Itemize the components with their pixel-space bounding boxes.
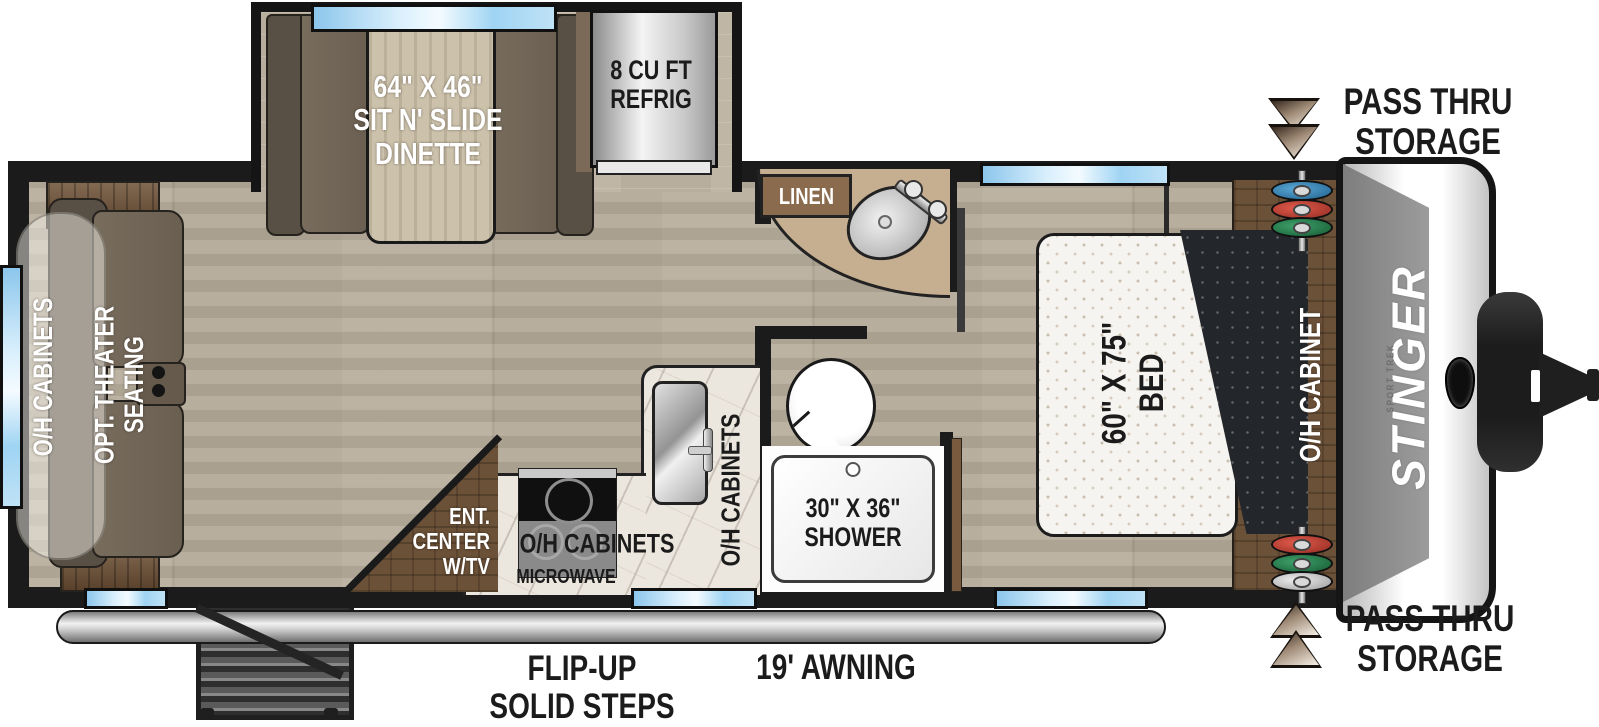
dinette-label: 64" X 46" SIT N' SLIDE DINETTE <box>353 70 502 170</box>
storage-disc-silver <box>1271 571 1333 592</box>
oh-cabinets-rear-label: O/H CABINETS <box>29 298 59 457</box>
hitch-coupler-knob <box>1587 369 1599 401</box>
kitchen-faucet-icon <box>688 446 712 455</box>
shower-drain-icon <box>846 462 861 477</box>
window-rear-wall <box>0 265 23 509</box>
kitchen-oh-cabinets-label: O/H CABINETS <box>520 529 675 558</box>
window-dinette-slide <box>311 4 557 32</box>
burner-icon <box>545 478 593 524</box>
hitch-coupler <box>1539 352 1593 418</box>
oh-cabinet-bedroom-label: O/H CABINET <box>1296 308 1328 463</box>
refrigerator-label: 8 CU FT REFRIG <box>610 56 692 114</box>
propane-cover-notch <box>1531 370 1540 402</box>
window-bottom-bedroom <box>994 588 1148 609</box>
bathroom-door <box>957 208 965 332</box>
window-bottom-kitchen <box>631 588 757 609</box>
cupholder-icon <box>152 366 165 379</box>
pass-thru-top-label: PASS THRU STORAGE <box>1344 82 1513 162</box>
pass-thru-arrow-top-2 <box>1268 124 1320 160</box>
faucet-handle-icon <box>904 180 923 199</box>
storage-disc-green <box>1271 217 1333 238</box>
microwave-label: MICROWAVE <box>516 567 615 589</box>
step-foot-right <box>324 708 338 718</box>
brand-sub-label: SPORT TREK <box>1386 343 1397 412</box>
linen-label: LINEN <box>778 183 833 210</box>
ent-center-label: ENT. CENTER W/TV <box>398 504 490 579</box>
linen-closet: LINEN <box>760 174 852 218</box>
kitchen-sink <box>652 381 708 505</box>
awning-label: 19' AWNING <box>756 649 916 687</box>
shower-label: 30" X 36" SHOWER <box>804 494 901 552</box>
refrigerator-counter-strip <box>596 160 712 175</box>
steps-label: FLIP-UP SOLID STEPS <box>489 650 674 726</box>
storage-disc-red2 <box>1271 534 1333 555</box>
window-top-bedroom <box>980 163 1170 186</box>
pass-thru-bottom-label: PASS THRU STORAGE <box>1346 599 1515 679</box>
toilet <box>786 358 876 454</box>
kitchen-oh-cabinets-vertical-label: O/H CABINETS <box>717 414 746 567</box>
pass-thru-arrow-bottom-2 <box>1270 630 1322 668</box>
storage-disc-blue <box>1271 180 1333 201</box>
faucet-handle-icon <box>928 200 947 219</box>
wall-bath-mid <box>755 326 867 339</box>
wall-top-left <box>8 161 253 182</box>
bedroom-door <box>951 438 962 592</box>
sink-drain-icon <box>878 215 892 229</box>
floorplan-canvas: LINEN 64" X 46" SIT N' SLIDE DINETTE 8 C… <box>0 0 1599 727</box>
window-bottom-rear <box>84 588 168 609</box>
cupholder-icon <box>152 384 165 397</box>
step-foot-left <box>200 708 214 718</box>
bed-label: 60" X 75" BED <box>1097 322 1172 445</box>
theater-seating-label: OPT. THEATER SEATING <box>90 306 149 464</box>
